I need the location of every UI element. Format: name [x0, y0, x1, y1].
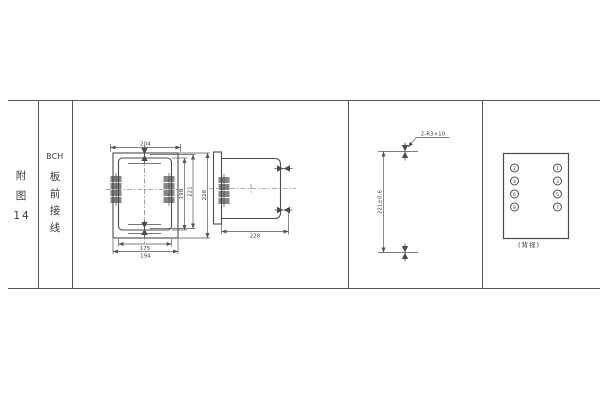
front-view: 204 196 221 228 175 194 — [106, 142, 210, 260]
drawing-sheet: 附 图 14 BCH 板 前 接 线 — [0, 0, 600, 400]
terminal-number: 4 — [513, 179, 516, 185]
front-top-mounting-stud — [141, 146, 147, 164]
front-bottom-mounting-stud — [141, 220, 147, 238]
dim-hole-spacing: 221±0.6 — [378, 190, 384, 214]
hole-callout-leader — [408, 138, 450, 148]
side-view-dimensions — [222, 212, 289, 235]
dim-height-mid: 221 — [188, 186, 194, 197]
index-char-2: 图 — [16, 190, 27, 202]
dim-width-bottom-outer: 194 — [140, 254, 151, 260]
terminal-number: 6 — [513, 192, 516, 198]
terminal-number: 3 — [556, 179, 559, 185]
side-flange-outline — [214, 152, 222, 224]
side-top-rear-stud — [275, 165, 293, 171]
dim-height-outer: 228 — [202, 190, 208, 201]
terminal-number: 2 — [513, 166, 516, 172]
terminal-number: 7 — [556, 205, 559, 211]
terminal-view: 2 4 6 8 1 3 5 7 (背视) — [504, 154, 569, 250]
index-char-1: 附 — [16, 169, 27, 182]
model-label: BCH — [46, 152, 63, 161]
terminal-number: 1 — [556, 166, 559, 172]
terminal-number: 5 — [556, 192, 559, 198]
dim-width-top: 204 — [140, 142, 151, 148]
dim-depth: 228 — [250, 234, 261, 240]
technical-drawing: 附 图 14 BCH 板 前 接 线 — [0, 0, 600, 400]
title-char-1: 板 — [50, 170, 61, 183]
figure-title-cell: BCH 板 前 接 线 — [46, 152, 63, 234]
side-view: 228 — [209, 152, 296, 240]
index-number: 14 — [13, 210, 30, 222]
terminal-number: 8 — [513, 205, 516, 211]
title-char-4: 线 — [50, 221, 61, 234]
title-char-2: 前 — [50, 187, 61, 200]
dim-height-inner: 196 — [179, 189, 185, 200]
title-char-3: 接 — [50, 204, 61, 217]
front-cover-outline — [119, 158, 172, 230]
hole-callout: 2-R3×10 — [421, 132, 445, 138]
dim-width-bottom-inner: 175 — [140, 246, 151, 252]
terminal-view-caption: (背视) — [518, 240, 540, 249]
figure-index-cell: 附 图 14 — [13, 169, 30, 222]
side-bottom-rear-stud — [275, 207, 293, 213]
side-terminal-stack — [219, 174, 230, 207]
drill-view: 221±0.6 2-R3×10 — [378, 132, 450, 262]
